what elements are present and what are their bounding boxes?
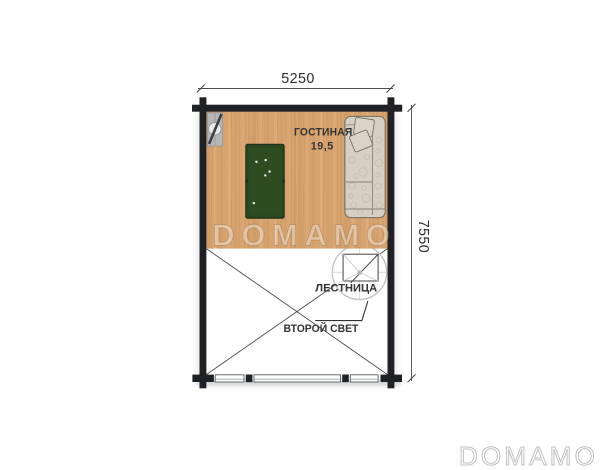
svg-text:ВТОРОЙ СВЕТ: ВТОРОЙ СВЕТ bbox=[284, 322, 359, 335]
svg-text:DOMAMO: DOMAMO bbox=[213, 219, 397, 253]
svg-text:ГОСТИНАЯ: ГОСТИНАЯ bbox=[294, 127, 353, 139]
svg-text:7550: 7550 bbox=[415, 220, 431, 253]
svg-text:19,5: 19,5 bbox=[311, 140, 334, 152]
svg-text:5250: 5250 bbox=[281, 71, 314, 87]
svg-text:ЛЕСТНИЦА: ЛЕСТНИЦА bbox=[315, 283, 377, 295]
svg-text:DOMAMO: DOMAMO bbox=[459, 441, 598, 470]
